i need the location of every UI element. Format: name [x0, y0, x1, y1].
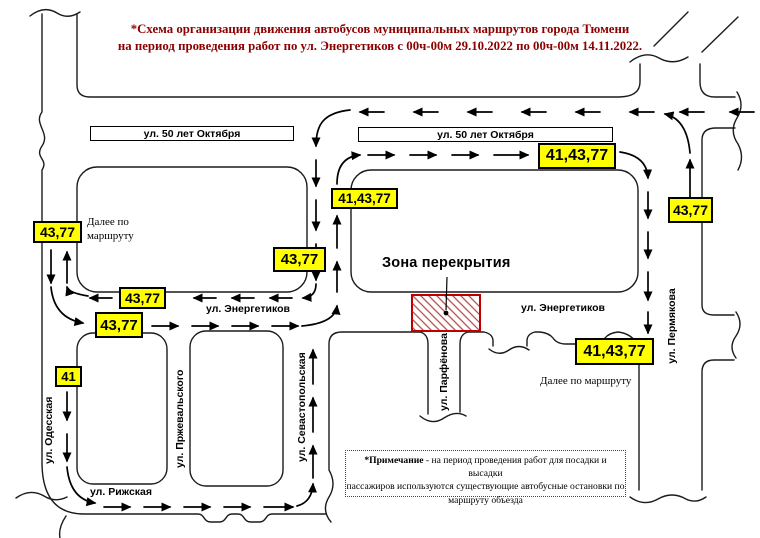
- street-sign-oktyabrya-left: ул. 50 лет Октября: [90, 126, 294, 141]
- route-badge-mid-street-south: 43,77: [273, 247, 326, 272]
- route-continues-left-line1: Далее по: [87, 215, 145, 229]
- street-label-przhevalskogo: ул. Пржевальского: [173, 370, 187, 468]
- street-label-permyakova: ул. Пермякова: [665, 288, 679, 364]
- street-sign-oktyabrya-right: ул. 50 лет Октября: [358, 127, 613, 142]
- scheme-title-line1: *Схема организации движения автобусов му…: [30, 21, 730, 38]
- closure-zone-label: Зона перекрытия: [382, 255, 511, 271]
- route-continues-right: Далее по маршруту: [540, 374, 650, 388]
- street-label-energetikov-right: ул. Энергетиков: [518, 302, 608, 314]
- street-label-parfyonova: ул. Парфёнова: [437, 339, 451, 411]
- route-badge-energetikov-westbound: 43,77: [119, 287, 166, 309]
- closure-hatch: [364, 295, 504, 331]
- route-badge-energetikov-eastbound: 43,77: [95, 312, 143, 338]
- route-badge-odesskaya-north: 43,77: [33, 221, 82, 243]
- footnote-line3: маршруту объезда: [346, 494, 625, 507]
- street-label-energetikov-left: ул. Энергетиков: [203, 303, 293, 315]
- footnote-box: *Примечание - на период проведения работ…: [345, 450, 626, 497]
- route-badge-permyakova-south: 41,43,77: [575, 338, 654, 365]
- footnote-bold: *Примечание: [364, 455, 423, 466]
- route-badge-permyakova-north: 43,77: [668, 197, 713, 223]
- street-label-sevastopolskaya: ул. Севастопольская: [295, 358, 309, 462]
- bus-route-scheme: *Схема организации движения автобусов му…: [0, 0, 760, 538]
- footnote-line2: пассажиров используются существующие авт…: [346, 480, 625, 493]
- scheme-title: *Схема организации движения автобусов му…: [30, 21, 730, 55]
- scheme-title-line2: на период проведения работ по ул. Энерге…: [30, 38, 730, 55]
- footnote-line1: *Примечание - на период проведения работ…: [346, 454, 625, 480]
- street-label-rizhskaya: ул. Рижская: [88, 486, 154, 498]
- route-badge-sevastopolskaya-north: 41,43,77: [331, 188, 398, 209]
- route-badge-odesskaya-41: 41: [55, 366, 82, 387]
- street-label-odesskaya: ул. Одесская: [42, 398, 56, 464]
- footnote-line1-rest: - на период проведения работ для посадки…: [424, 455, 607, 479]
- route-badge-oktyabrya-east: 41,43,77: [538, 143, 616, 169]
- route-continues-left: Далее по маршруту: [87, 215, 145, 243]
- route-continues-left-line2: маршруту: [87, 229, 145, 243]
